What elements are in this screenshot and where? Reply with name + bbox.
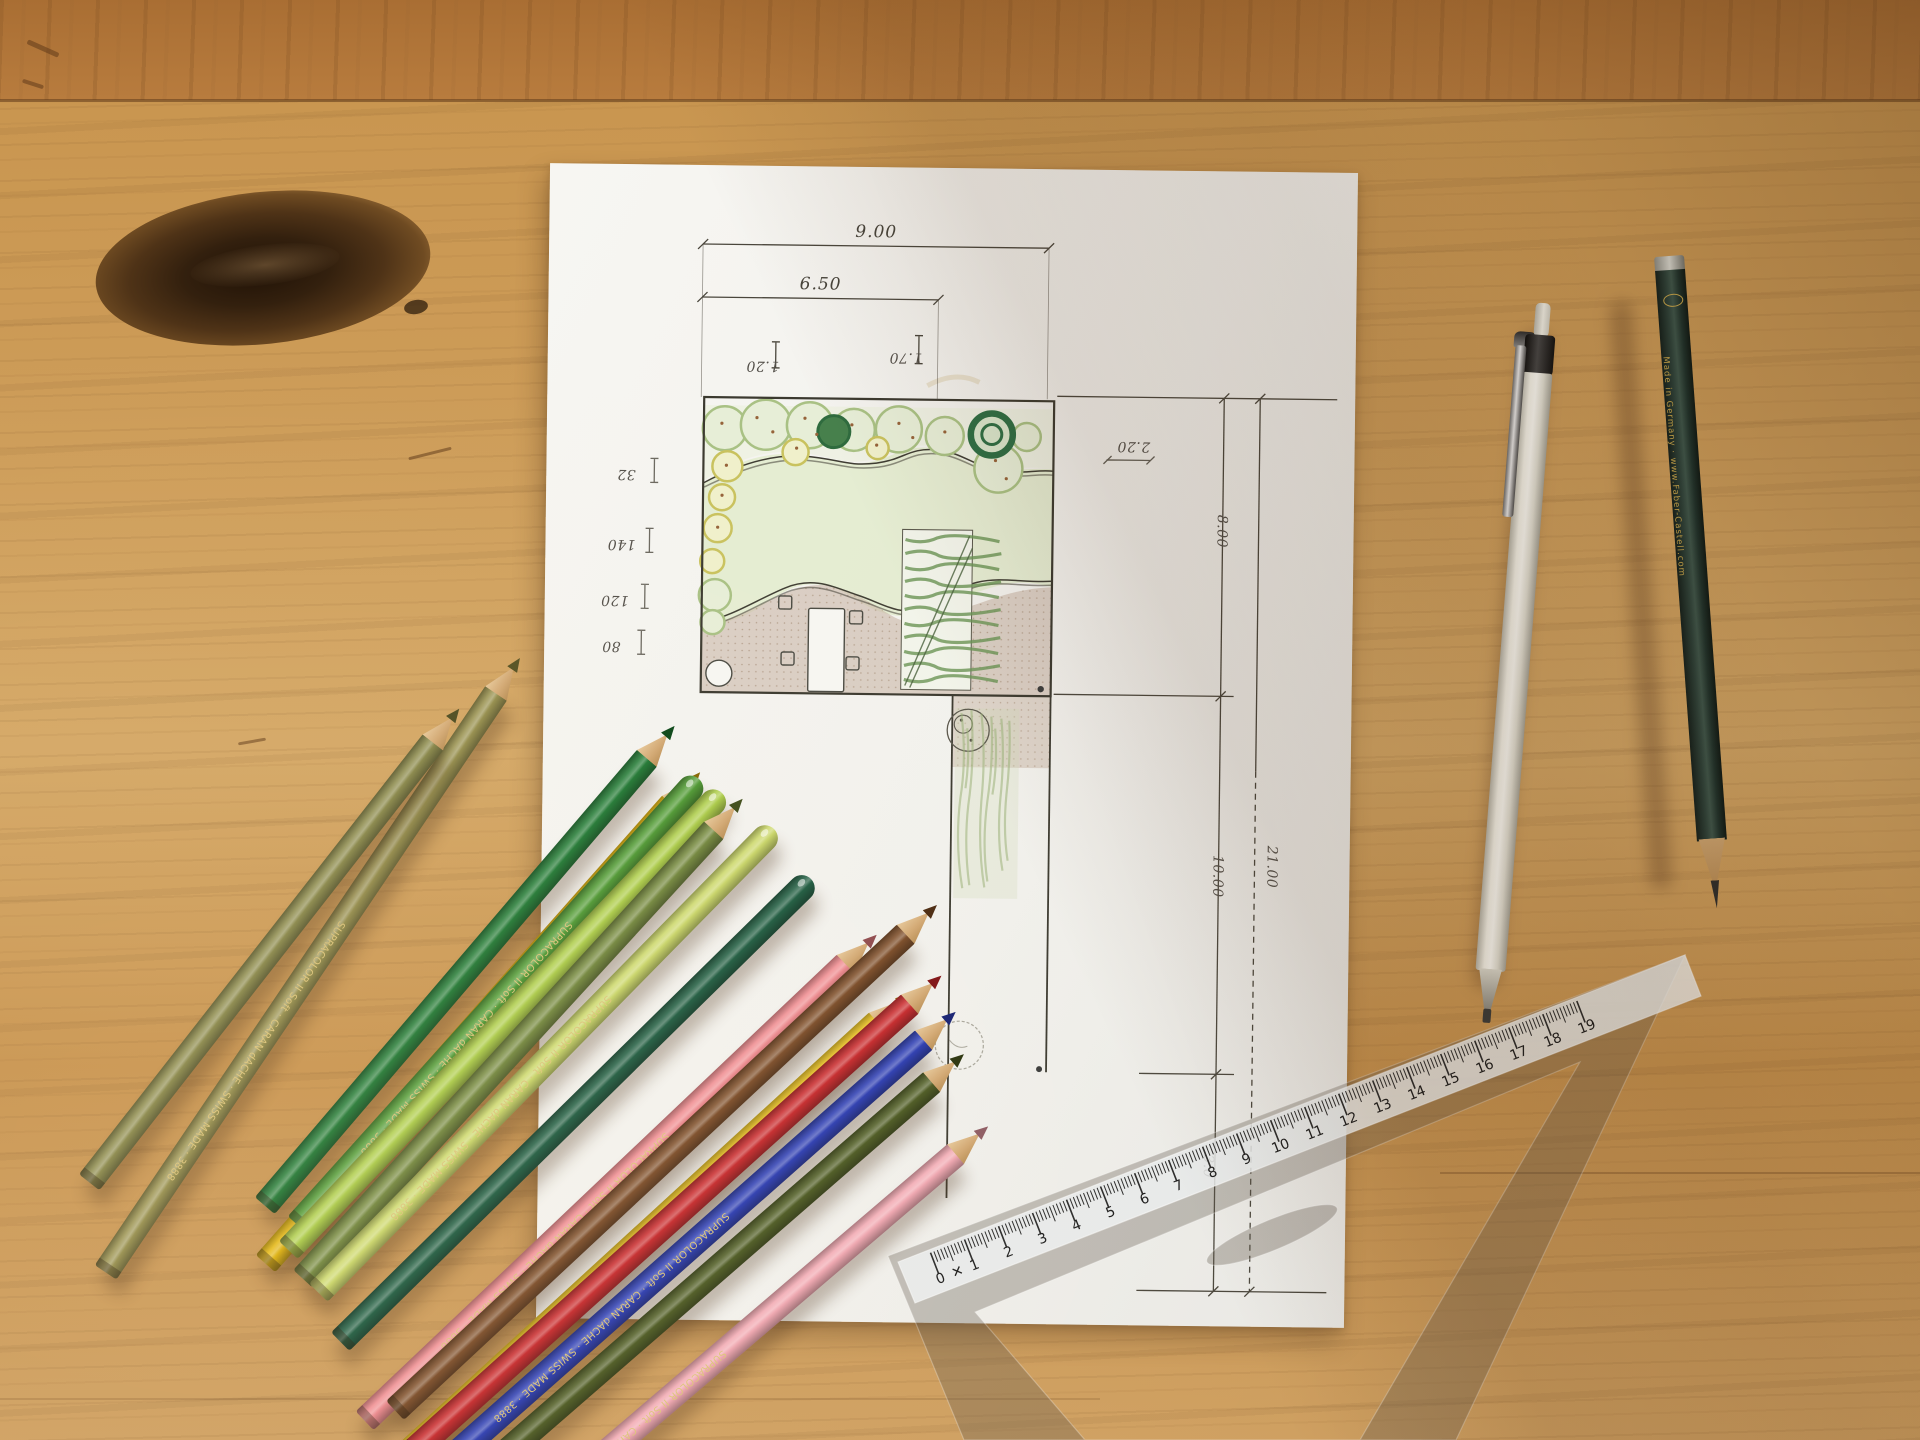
dim-label-10.00: 10.00 — [1209, 855, 1226, 898]
graphite-pencil-lead — [1710, 880, 1722, 909]
plan-paper: 9.00 6.50 1.20 1.70 32 140 120 80 2.20 8… — [536, 163, 1358, 1328]
wood-top-board — [0, 0, 1920, 100]
wood-board-seam — [0, 1398, 1100, 1400]
dim-label-6.50: 6.50 — [800, 274, 842, 295]
garden-plan-drawing: 9.00 6.50 1.20 1.70 32 140 120 80 2.20 8… — [536, 163, 1358, 1328]
plan-left-label: 140 — [607, 536, 635, 552]
pen-cone — [1472, 968, 1505, 1012]
pen-push-button — [1533, 302, 1551, 337]
pen-tip — [1482, 1009, 1491, 1024]
wood-board-seam — [1440, 1172, 1920, 1174]
dim-label-9.00: 9.00 — [855, 222, 897, 243]
plan-left-label: 80 — [602, 638, 621, 654]
desk-photo-scene: 9.00 6.50 1.20 1.70 32 140 120 80 2.20 8… — [0, 0, 1920, 1440]
dim-label-1.70: 1.70 — [889, 349, 922, 365]
dim-label-2.20: 2.20 — [1117, 438, 1151, 454]
dim-label-21.00: 21.00 — [1263, 845, 1280, 889]
plan-left-label: 120 — [601, 592, 629, 608]
dim-label-3.0: 3.0 — [1200, 1154, 1216, 1178]
plan-weeping-tree — [935, 708, 1019, 1070]
plan-left-label: 32 — [617, 466, 636, 482]
dim-label-8.00: 8.00 — [1213, 515, 1229, 548]
dim-label-1.20: 1.20 — [746, 358, 779, 374]
wood-board-seam — [0, 99, 1920, 102]
